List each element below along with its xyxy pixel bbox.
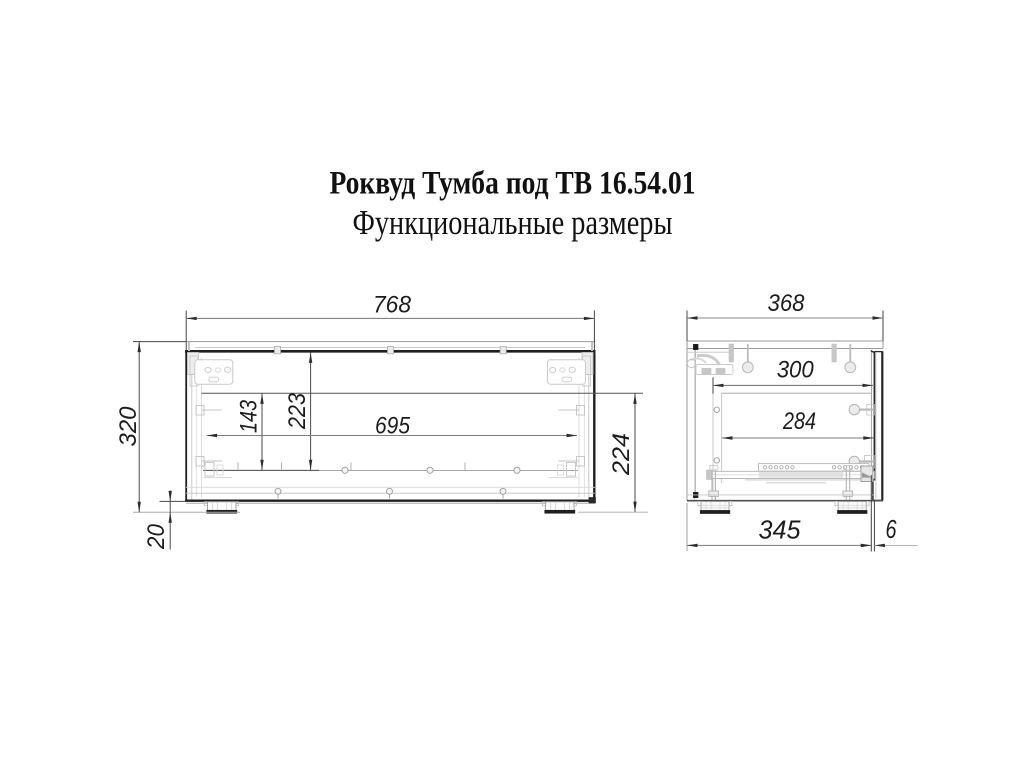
svg-text:Функциональные размеры: Функциональные размеры [353,203,673,242]
svg-text:320: 320 [115,406,142,447]
svg-text:284: 284 [782,408,816,435]
svg-text:6: 6 [886,514,897,544]
svg-text:768: 768 [373,291,412,318]
svg-text:368: 368 [768,290,806,317]
svg-text:143: 143 [235,399,262,433]
svg-text:695: 695 [375,412,411,439]
svg-text:345: 345 [759,514,802,544]
svg-text:223: 223 [284,392,311,429]
svg-text:Роквуд Тумба под ТВ 16.54.01: Роквуд Тумба под ТВ 16.54.01 [330,166,696,202]
svg-text:224: 224 [608,433,635,476]
svg-text:300: 300 [777,356,815,383]
svg-text:20: 20 [143,523,170,550]
